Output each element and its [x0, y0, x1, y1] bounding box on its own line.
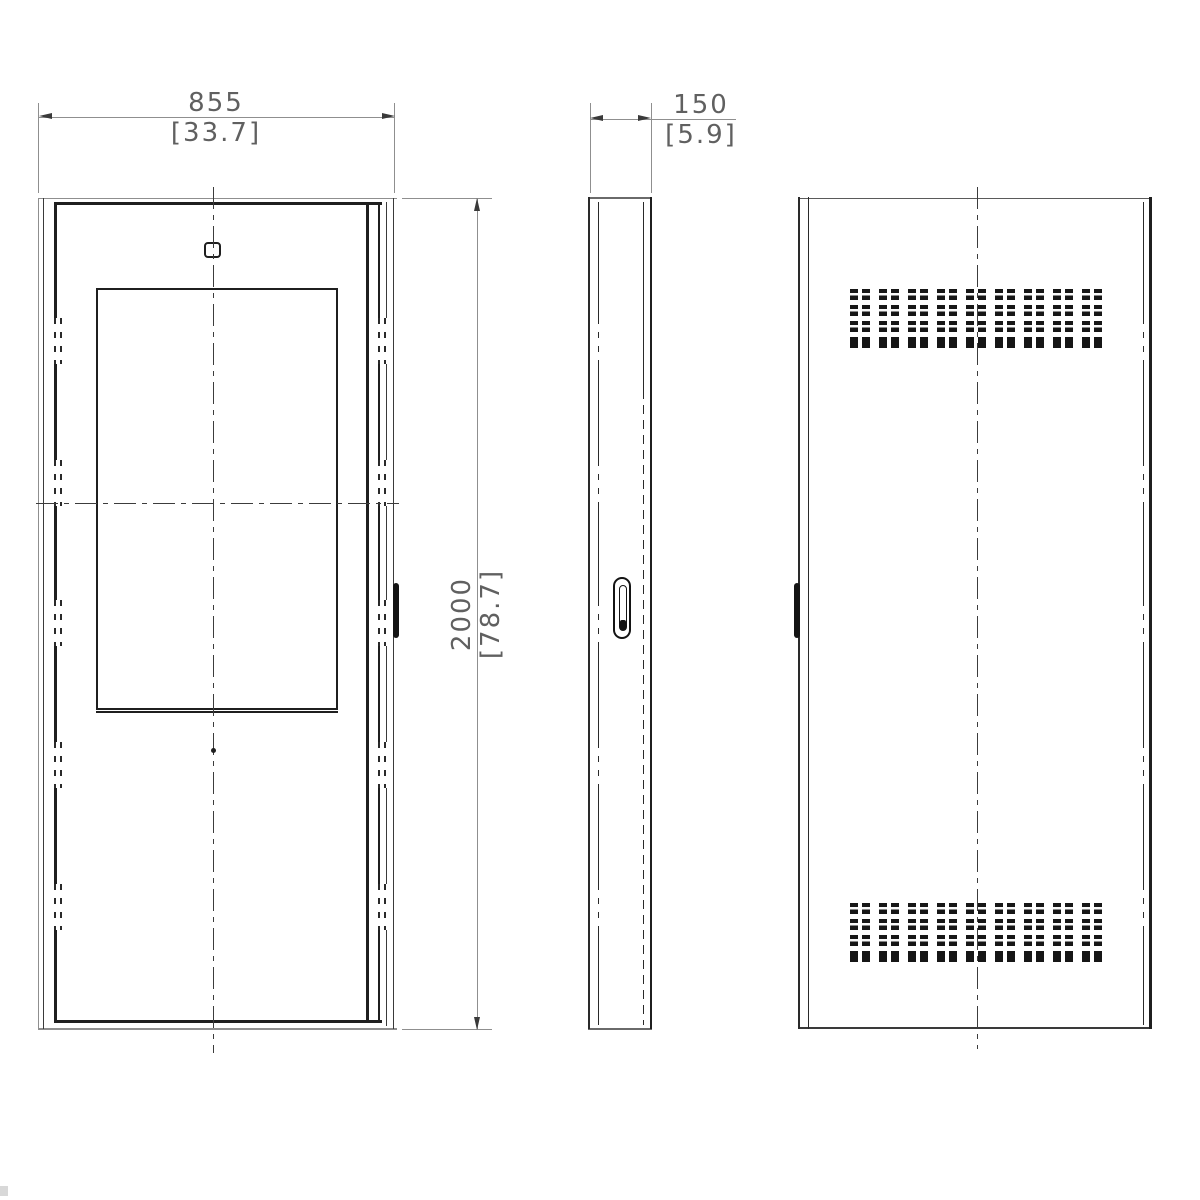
vent-slot: [995, 951, 1003, 962]
vent-slot: [978, 289, 986, 300]
vent-slot-group: [937, 903, 957, 962]
vent-slot: [908, 289, 916, 300]
vent-slot: [879, 337, 887, 348]
vent-slot: [978, 305, 986, 316]
vent-slot: [978, 951, 986, 962]
vent-slot: [995, 903, 1003, 914]
vent-slot-group: [995, 289, 1015, 348]
vent-slot: [920, 337, 928, 348]
center-mark-dot: [211, 748, 216, 753]
vent-slot: [1024, 321, 1032, 332]
hinge-dash-marks: [52, 460, 64, 506]
arrowhead-right-icon: [382, 113, 395, 119]
vent-slot: [850, 919, 858, 930]
vent-slot: [1065, 951, 1073, 962]
vent-slot: [1082, 919, 1090, 930]
vent-slot: [879, 903, 887, 914]
vent-slot: [978, 903, 986, 914]
vent-slot: [937, 305, 945, 316]
display-window-sill: [96, 711, 338, 713]
vent-slot: [966, 305, 974, 316]
vent-slot: [937, 951, 945, 962]
arrowhead-down-icon: [474, 1017, 480, 1030]
vent-slot: [966, 321, 974, 332]
vent-slot: [1053, 919, 1061, 930]
vent-slot: [1036, 919, 1044, 930]
corner-watermark: [0, 1186, 8, 1196]
frame-left-line: [43, 198, 44, 1029]
vent-slot-group: [1082, 903, 1102, 962]
vent-slot: [1024, 305, 1032, 316]
dimension-height-alt-value: [78.7]: [477, 549, 506, 679]
vent-slot: [1082, 903, 1090, 914]
vent-slot: [1036, 289, 1044, 300]
door-bottom-edge: [54, 1020, 382, 1023]
vent-slot: [1082, 935, 1090, 946]
vent-slot: [937, 337, 945, 348]
vent-slot: [908, 337, 916, 348]
vent-slot-group: [908, 289, 928, 348]
vent-slot: [879, 935, 887, 946]
vent-slot: [850, 935, 858, 946]
vent-slot: [966, 951, 974, 962]
hinge-dash-marks: [596, 460, 602, 506]
hinge-dash-marks: [52, 884, 64, 930]
vent-slot-group: [850, 903, 870, 962]
vent-slot: [1036, 935, 1044, 946]
dimension-depth-value: 150: [641, 90, 761, 120]
vent-slot: [1065, 935, 1073, 946]
vent-slot: [1082, 337, 1090, 348]
dimension-height-value: 2000: [448, 549, 477, 679]
vent-slot: [879, 951, 887, 962]
vent-slot: [1082, 289, 1090, 300]
vent-slot: [879, 919, 887, 930]
vent-slot: [908, 321, 916, 332]
vent-slot: [891, 935, 899, 946]
vent-slot: [879, 289, 887, 300]
vent-slot: [1094, 935, 1102, 946]
hinge-dash-marks: [52, 742, 64, 788]
vent-slot: [920, 321, 928, 332]
hinge-dash-marks: [1141, 742, 1147, 788]
vent-slot: [995, 935, 1003, 946]
hinge-dash-marks: [376, 318, 388, 364]
vent-slot: [937, 935, 945, 946]
vent-slot-group: [1082, 289, 1102, 348]
body-bottom-edge: [38, 1028, 397, 1030]
vent-slot: [978, 337, 986, 348]
body-bottom-edge: [798, 1027, 1152, 1029]
vent-slot: [1007, 337, 1015, 348]
vent-slot: [949, 903, 957, 914]
vent-slot: [1094, 305, 1102, 316]
vent-slot: [908, 935, 916, 946]
vent-slot: [1065, 919, 1073, 930]
vent-slot: [1053, 289, 1061, 300]
dimension-height-label: 2000 [78.7]: [448, 549, 506, 679]
front-face-edge: [588, 197, 590, 1029]
vent-slot: [949, 337, 957, 348]
vent-slot: [920, 935, 928, 946]
door-handle-icon: [393, 583, 399, 638]
vent-slot: [966, 289, 974, 300]
vent-slot: [966, 935, 974, 946]
door-top-edge: [54, 202, 382, 205]
enclosure-technical-drawing: 855 [33.7] 150 [5.9] 2000 [78.7]: [0, 0, 1200, 1200]
hinge-dash-marks: [1141, 460, 1147, 506]
vent-slot: [937, 289, 945, 300]
vent-slot: [949, 289, 957, 300]
vent-slot-group: [879, 903, 899, 962]
vent-slot: [908, 951, 916, 962]
vent-slot: [850, 289, 858, 300]
body-bottom-edge: [588, 1028, 652, 1030]
vent-slot: [1024, 919, 1032, 930]
vent-slot: [1053, 337, 1061, 348]
vent-slot: [891, 337, 899, 348]
vent-slot: [1007, 935, 1015, 946]
vent-slot-group: [1053, 289, 1073, 348]
vent-slot-group: [879, 289, 899, 348]
vent-slot: [1082, 321, 1090, 332]
body-left-edge: [38, 198, 39, 1029]
vent-slot-group: [1024, 903, 1044, 962]
vent-slot: [862, 903, 870, 914]
vent-slot: [1024, 289, 1032, 300]
vent-slot: [1094, 321, 1102, 332]
door-right-edge: [366, 202, 369, 1023]
dimension-width-value: 855: [146, 88, 286, 118]
vent-slot: [966, 337, 974, 348]
vent-slot: [1007, 919, 1015, 930]
dimension-depth-alt-value: [5.9]: [641, 120, 761, 150]
vent-slot: [966, 903, 974, 914]
vent-slot: [862, 289, 870, 300]
vent-slot: [920, 289, 928, 300]
vent-slot: [1053, 935, 1061, 946]
vent-slot: [995, 321, 1003, 332]
vent-slot: [850, 321, 858, 332]
hinge-dash-marks: [376, 600, 388, 646]
vent-slot: [1082, 951, 1090, 962]
vent-slot: [978, 935, 986, 946]
vent-slot: [937, 919, 945, 930]
inner-panel-line: [643, 202, 644, 390]
hinge-dash-marks: [1141, 884, 1147, 930]
vent-slot: [1053, 951, 1061, 962]
vent-slot-group: [1024, 289, 1044, 348]
vent-slot: [949, 935, 957, 946]
vent-slot: [1053, 305, 1061, 316]
hinge-dash-marks: [596, 318, 602, 364]
dimension-width-alt-value: [33.7]: [146, 118, 286, 148]
vent-slot: [949, 321, 957, 332]
vent-slot: [920, 305, 928, 316]
vent-slot: [850, 951, 858, 962]
vent-slot: [995, 305, 1003, 316]
vent-slot: [1065, 321, 1073, 332]
vent-slot: [1007, 321, 1015, 332]
vent-slot: [862, 321, 870, 332]
hinge-dash-marks: [596, 884, 602, 930]
body-top-edge: [798, 198, 1152, 200]
vent-slot: [862, 935, 870, 946]
vent-slot: [995, 337, 1003, 348]
hinge-dash-marks: [376, 460, 388, 506]
vent-slot: [978, 919, 986, 930]
vent-slot: [1024, 337, 1032, 348]
vent-slot: [1036, 305, 1044, 316]
hinge-dash-marks: [376, 742, 388, 788]
vent-slot: [937, 903, 945, 914]
vent-slot: [1007, 305, 1015, 316]
vent-slot: [891, 951, 899, 962]
vent-slot: [1094, 951, 1102, 962]
vent-slot: [908, 305, 916, 316]
vent-slot: [879, 321, 887, 332]
vent-slot: [891, 321, 899, 332]
vent-slot: [1082, 305, 1090, 316]
vent-slot-group: [937, 289, 957, 348]
arrowhead-left-icon: [590, 115, 603, 121]
hinge-dash-marks: [596, 600, 602, 646]
vent-slot: [1036, 903, 1044, 914]
hinge-dash-marks: [376, 884, 388, 930]
vent-slot: [862, 951, 870, 962]
frame-left-line: [808, 197, 810, 1029]
vent-slot: [1007, 951, 1015, 962]
vent-slot: [949, 919, 957, 930]
hinge-dash-marks: [1141, 318, 1147, 364]
vent-slot: [920, 951, 928, 962]
vent-slot: [949, 951, 957, 962]
vent-slot: [850, 337, 858, 348]
horizontal-centerline: [36, 503, 399, 504]
vent-slot: [908, 919, 916, 930]
vent-slot: [1065, 305, 1073, 316]
vent-slot: [891, 289, 899, 300]
vent-slot: [862, 305, 870, 316]
vent-slot: [891, 919, 899, 930]
vent-slot: [891, 903, 899, 914]
vent-slot: [1007, 903, 1015, 914]
vent-slot: [1036, 337, 1044, 348]
vent-slot-group: [850, 289, 870, 348]
vent-slot: [1053, 321, 1061, 332]
vent-slot: [978, 321, 986, 332]
vent-slot: [850, 305, 858, 316]
display-window: [96, 288, 338, 710]
vent-slot: [850, 903, 858, 914]
vent-slot: [995, 289, 1003, 300]
body-top-edge: [588, 197, 652, 199]
vent-slot: [862, 337, 870, 348]
vent-slot: [1007, 289, 1015, 300]
vent-slot: [1094, 337, 1102, 348]
vent-slot: [1065, 337, 1073, 348]
vent-slot-group: [1053, 903, 1073, 962]
vertical-centerline: [213, 187, 214, 1053]
vent-slot: [1036, 321, 1044, 332]
vent-slot: [862, 919, 870, 930]
vent-slot-group: [995, 903, 1015, 962]
vent-slot: [1065, 903, 1073, 914]
hinge-dash-marks: [52, 318, 64, 364]
hinge-dash-marks: [1141, 600, 1147, 646]
vent-slot-group: [908, 903, 928, 962]
vertical-centerline: [977, 187, 978, 1049]
vent-slot: [1094, 289, 1102, 300]
vent-slot: [937, 321, 945, 332]
hinge-dash-marks: [596, 742, 602, 788]
hinge-dash-marks: [52, 600, 64, 646]
vent-slot: [1094, 903, 1102, 914]
arrowhead-up-icon: [474, 198, 480, 211]
rear-face-edge: [650, 197, 653, 1029]
body-right-edge: [1149, 197, 1152, 1029]
vent-slot: [1024, 951, 1032, 962]
vent-slot: [1024, 935, 1032, 946]
vent-slot: [1024, 903, 1032, 914]
vent-slot: [879, 305, 887, 316]
vent-slot: [949, 305, 957, 316]
vent-slot: [920, 903, 928, 914]
vent-slot: [1036, 951, 1044, 962]
arrowhead-left-icon: [39, 113, 52, 119]
vent-slot: [1094, 919, 1102, 930]
vent-slot: [1053, 903, 1061, 914]
vent-slot: [995, 919, 1003, 930]
inner-panel-hidden-line: [643, 390, 644, 1025]
vent-slot: [920, 919, 928, 930]
vent-slot: [966, 919, 974, 930]
body-top-edge: [38, 198, 397, 199]
vent-slot: [891, 305, 899, 316]
door-handle-latch: [620, 620, 626, 630]
vent-slot: [908, 903, 916, 914]
door-handle-icon: [794, 583, 800, 638]
vent-slot: [1065, 289, 1073, 300]
